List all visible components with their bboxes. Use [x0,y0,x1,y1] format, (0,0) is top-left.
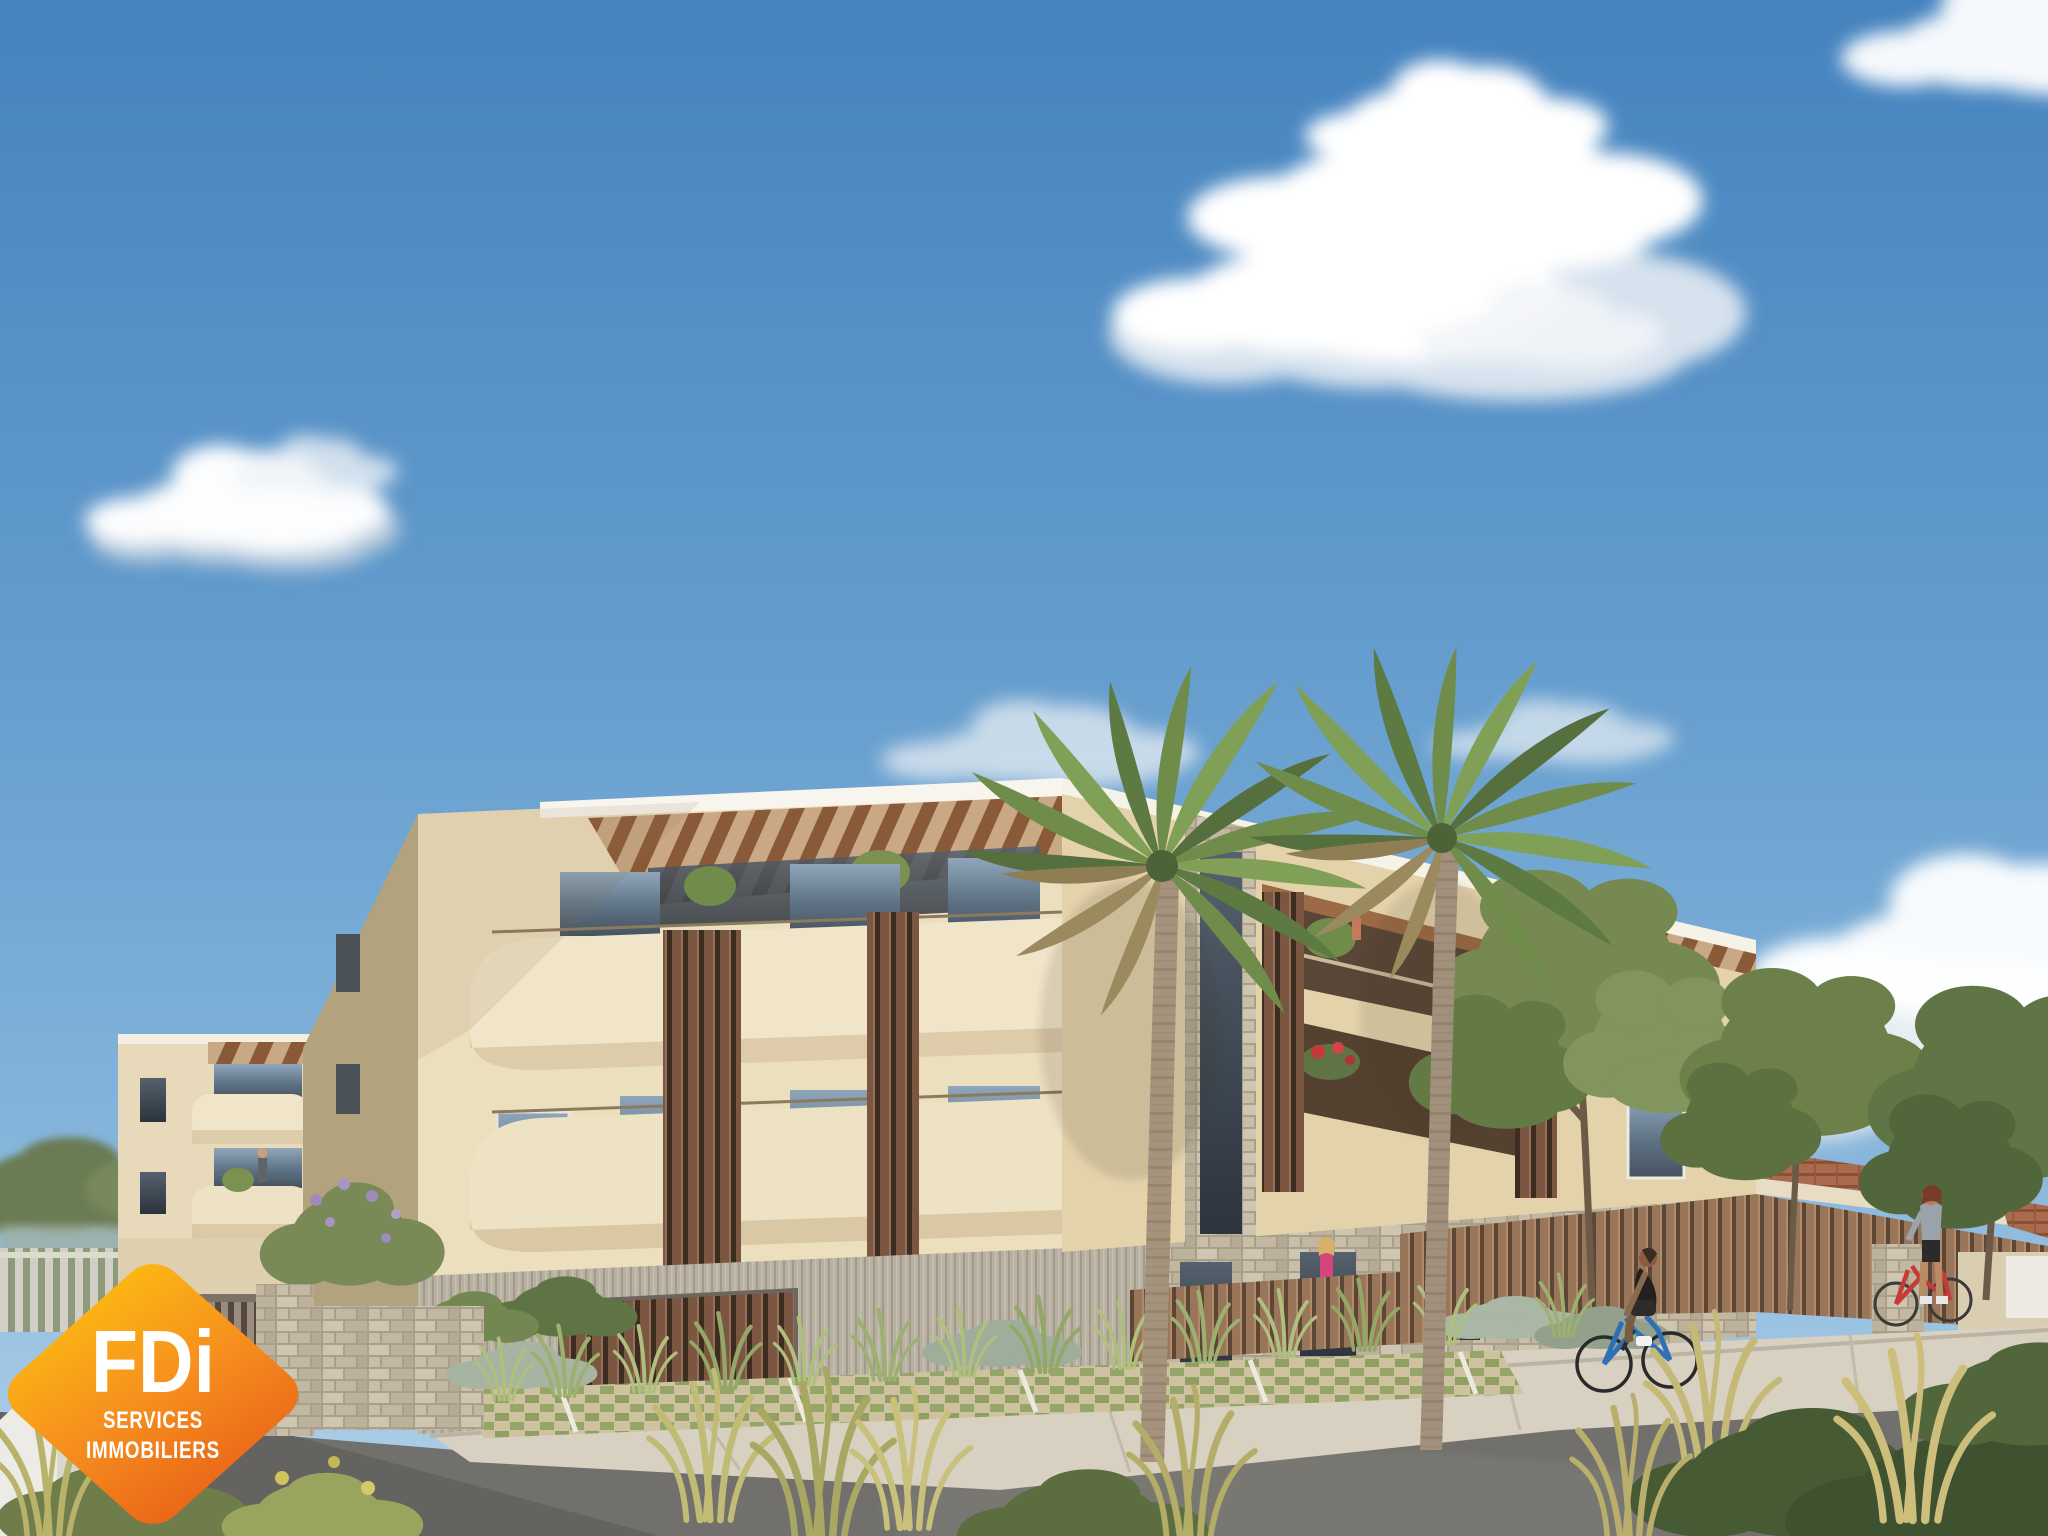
left-wing-pergola [208,1042,308,1064]
white-wall-right [2006,1256,2048,1318]
roof-terrace-plant-1 [684,866,736,906]
side-wall-window-2 [336,1064,360,1114]
slat-screen-a [663,930,741,1292]
left-wing-window-upper [140,1078,166,1122]
side-wall-window-1 [336,934,360,992]
logo-tagline-line1: SERVICES [103,1407,203,1434]
left-wing-window-lower [140,1172,166,1214]
balcony-palm-plant [222,1168,254,1192]
balcony-person-left-wing [258,1148,268,1182]
grey-top [1920,1202,1942,1240]
logo-tagline-line2: IMMOBILIERS [86,1437,220,1464]
rendering-canvas: FDi SERVICES IMMOBILIERS [0,0,2048,1536]
slat-screen-b [867,912,919,1280]
logo-brand-text: FDi [91,1312,215,1411]
